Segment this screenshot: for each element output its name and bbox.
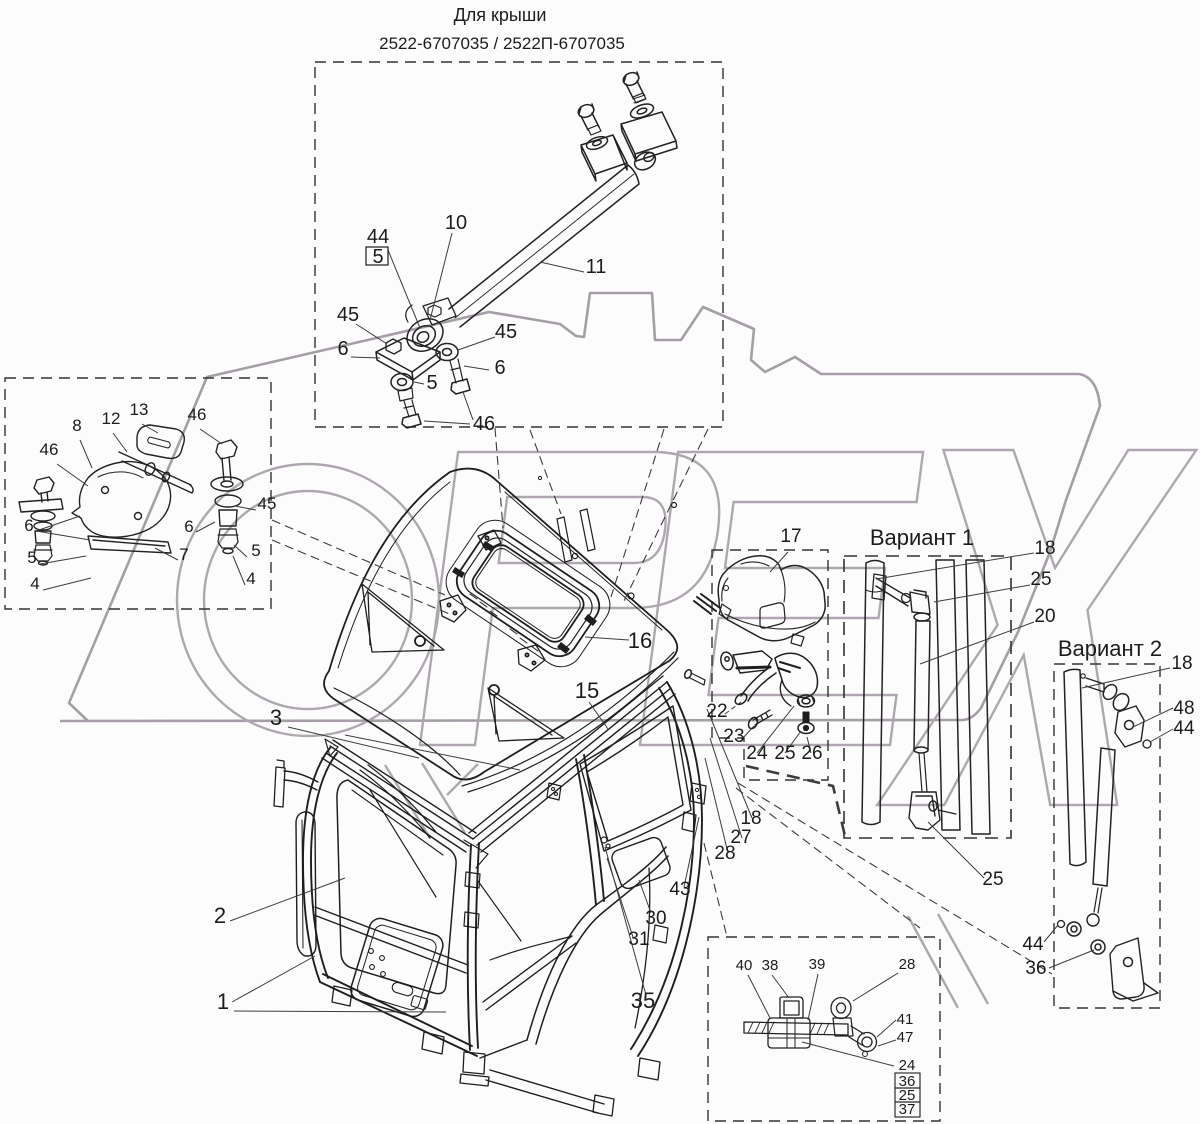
svg-text:13: 13 [130,400,149,419]
svg-text:47: 47 [897,1029,914,1046]
svg-text:46: 46 [188,405,207,424]
svg-text:28: 28 [899,956,916,973]
svg-text:11: 11 [586,256,607,278]
svg-text:40: 40 [736,957,753,974]
svg-text:Вариант 2: Вариант 2 [1058,636,1162,661]
svg-text:25: 25 [774,743,795,764]
svg-text:45: 45 [337,304,359,326]
svg-text:4: 4 [30,574,39,593]
svg-text:36: 36 [1025,958,1046,979]
svg-text:5: 5 [251,541,260,560]
svg-text:20: 20 [1034,606,1055,627]
svg-text:44: 44 [367,226,389,248]
svg-text:3: 3 [270,705,282,730]
svg-text:6: 6 [184,517,193,536]
svg-text:25: 25 [982,869,1003,890]
svg-text:5: 5 [27,548,36,567]
svg-text:31: 31 [628,929,649,950]
svg-text:2: 2 [214,903,226,928]
svg-text:43: 43 [669,879,690,900]
svg-text:45: 45 [258,494,277,513]
svg-text:2522-6707035 / 2522П-6707035: 2522-6707035 / 2522П-6707035 [379,34,625,53]
svg-text:7: 7 [179,545,188,564]
svg-text:16: 16 [628,628,652,653]
svg-text:15: 15 [575,678,599,703]
svg-text:6: 6 [24,516,33,535]
svg-text:5: 5 [426,372,437,394]
svg-text:24: 24 [746,743,768,764]
svg-text:44: 44 [1022,934,1044,955]
svg-text:1: 1 [217,989,229,1014]
svg-text:8: 8 [72,416,81,435]
svg-text:Вариант 1: Вариант 1 [870,525,974,550]
svg-text:41: 41 [897,1011,914,1028]
svg-text:6: 6 [337,338,348,360]
svg-text:17: 17 [780,526,801,547]
svg-text:25: 25 [1030,569,1051,590]
svg-text:37: 37 [899,1101,916,1118]
svg-text:10: 10 [445,212,467,234]
svg-text:44: 44 [1173,718,1195,739]
svg-text:26: 26 [801,743,822,764]
svg-text:22: 22 [706,701,727,722]
svg-text:4: 4 [246,569,255,588]
svg-text:24: 24 [899,1057,916,1074]
svg-text:18: 18 [1171,653,1192,674]
svg-text:39: 39 [809,956,826,973]
svg-text:38: 38 [762,957,779,974]
svg-text:12: 12 [102,409,121,428]
svg-text:27: 27 [730,827,751,848]
svg-text:18: 18 [740,808,761,829]
svg-text:23: 23 [723,726,744,747]
svg-text:30: 30 [645,908,666,929]
svg-text:46: 46 [40,440,59,459]
svg-text:6: 6 [494,357,505,379]
svg-text:45: 45 [495,321,517,343]
svg-text:18: 18 [1034,538,1055,559]
svg-text:35: 35 [631,988,655,1013]
svg-text:46: 46 [473,413,495,435]
svg-text:48: 48 [1173,698,1194,719]
svg-text:Для крыши: Для крыши [454,5,547,25]
